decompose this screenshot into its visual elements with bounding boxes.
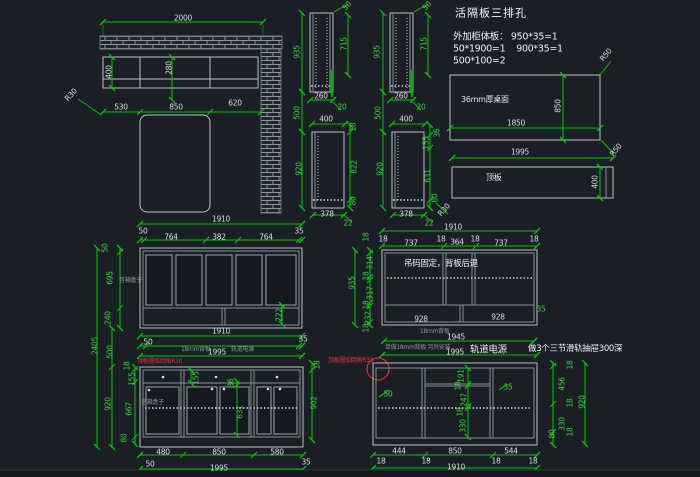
desktop-panel-view (450, 61, 613, 153)
drawing-canvas[interactable]: .o{stroke:#b9bfc6;stroke-width:1;fill:no… (0, 0, 700, 477)
wall-hatch-top (100, 36, 282, 49)
panel-side-view-1 (302, 4, 353, 222)
canvas-bottom-edge (0, 470, 700, 477)
counter-plan (103, 57, 258, 88)
revision-cloud-circle (367, 358, 389, 380)
panel-side-view-2 (383, 4, 448, 222)
base-cabinet-left-elevation (132, 363, 315, 469)
cad-viewport[interactable]: .o{stroke:#b9bfc6;stroke-width:1;fill:no… (0, 0, 700, 477)
wall-hatch-right (261, 49, 281, 213)
base-cabinet-right-elevation (373, 363, 585, 468)
top-board-view (452, 158, 613, 198)
desk-plan (140, 115, 210, 212)
plan-view (78, 22, 302, 224)
hanging-cabinet-elevation (355, 231, 537, 380)
